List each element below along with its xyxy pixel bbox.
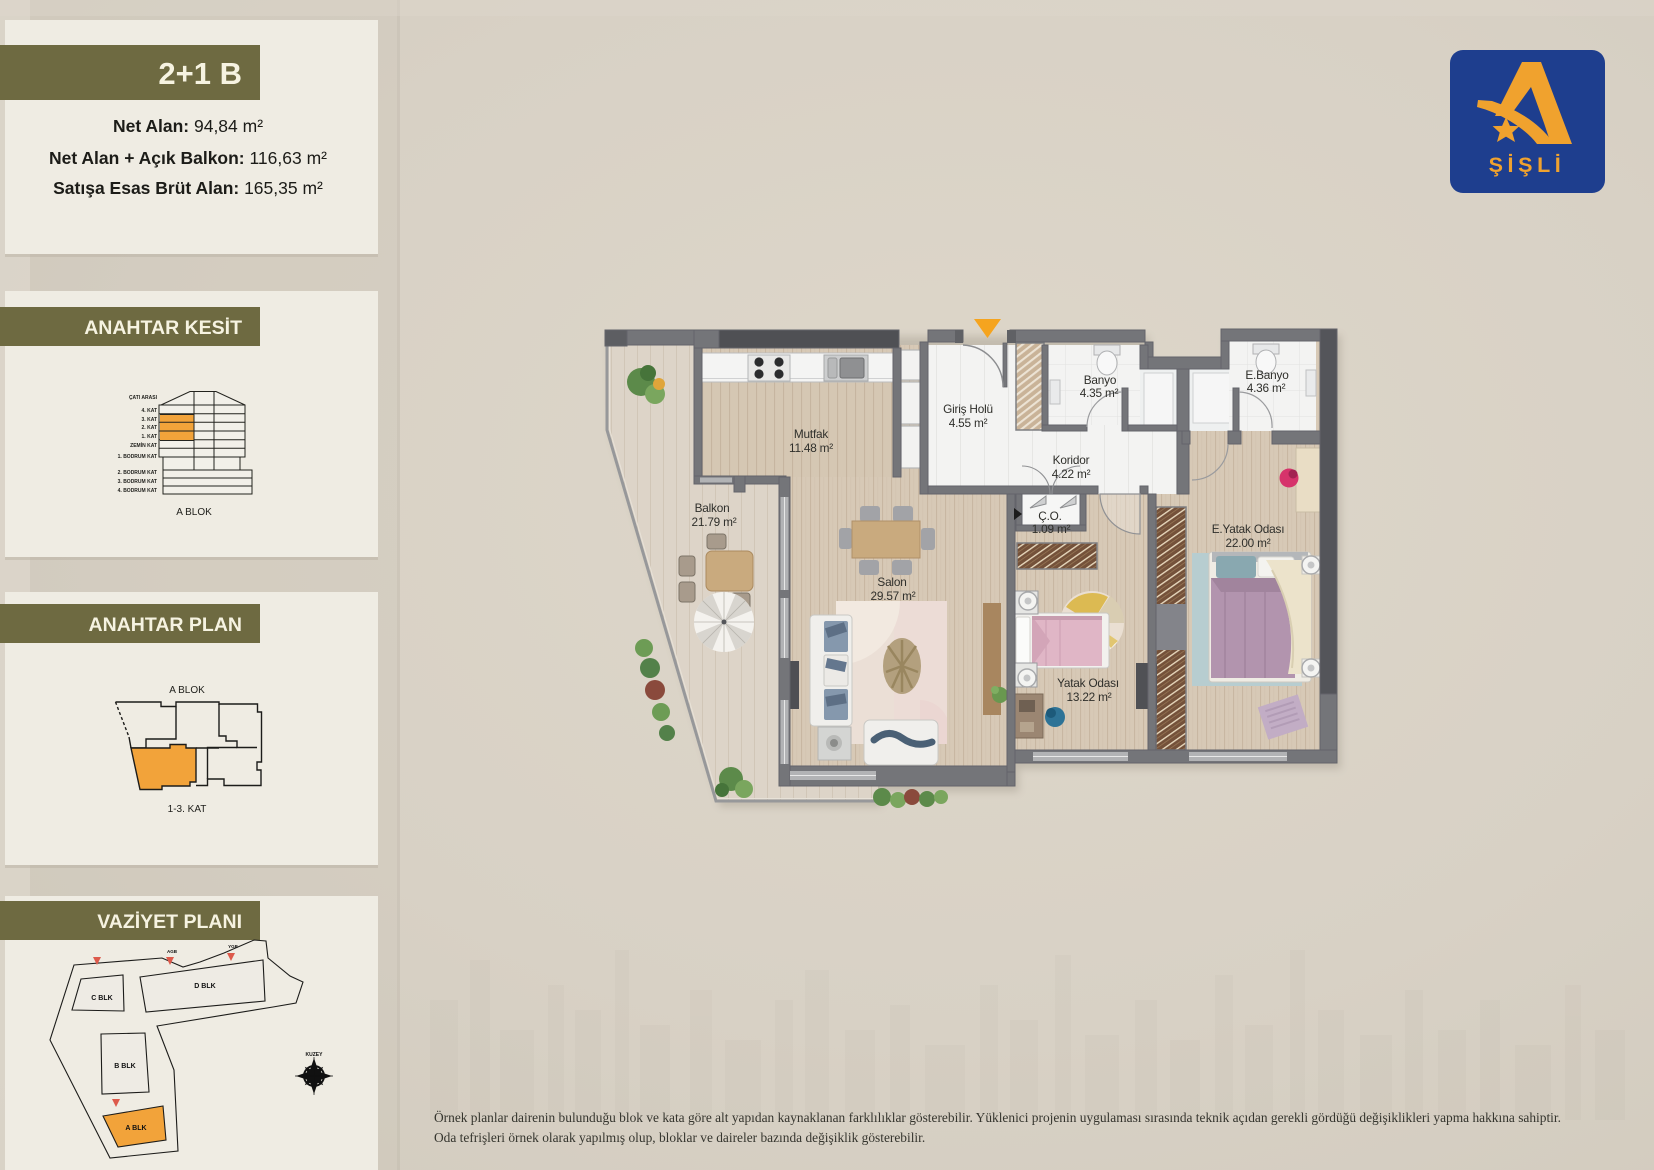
svg-text:Satışa Esas Brüt Alan: 165,35: Satışa Esas Brüt Alan: 165,35 m² [53, 178, 323, 198]
svg-text:Ç.O.: Ç.O. [1038, 509, 1061, 523]
svg-text:4. KAT: 4. KAT [142, 408, 157, 414]
svg-text:Net Alan: 94,84 m²: Net Alan: 94,84 m² [113, 116, 263, 136]
svg-text:Mutfak: Mutfak [794, 427, 829, 441]
svg-text:1. BODRUM KAT: 1. BODRUM KAT [118, 454, 157, 460]
svg-text:1.09 m²: 1.09 m² [1032, 522, 1071, 536]
svg-text:Giriş Holü: Giriş Holü [943, 402, 993, 416]
svg-text:Oda tefrişleri örnek olarak ya: Oda tefrişleri örnek olarak yapılmış olu… [434, 1130, 925, 1145]
svg-text:ZEMİN KAT: ZEMİN KAT [130, 442, 157, 449]
svg-text:1-3. KAT: 1-3. KAT [168, 804, 207, 815]
svg-text:Yatak Odası: Yatak Odası [1057, 676, 1119, 690]
svg-text:A BLK: A BLK [125, 1125, 146, 1132]
svg-text:22.00 m²: 22.00 m² [1226, 536, 1271, 550]
svg-text:2. KAT: 2. KAT [142, 425, 157, 431]
svg-text:2. BODRUM KAT: 2. BODRUM KAT [118, 470, 157, 476]
svg-text:Koridor: Koridor [1053, 453, 1090, 467]
svg-text:A BLOK: A BLOK [169, 685, 205, 696]
svg-text:ÇATI ARASI: ÇATI ARASI [129, 395, 158, 401]
svg-text:A BLOK: A BLOK [176, 507, 212, 518]
svg-text:13.22 m²: 13.22 m² [1067, 690, 1112, 704]
svg-text:Net Alan + Açık Balkon: 116,63: Net Alan + Açık Balkon: 116,63 m² [49, 148, 327, 168]
svg-text:E.Yatak Odası: E.Yatak Odası [1212, 522, 1285, 536]
svg-text:YGB: YGB [228, 944, 239, 949]
svg-text:3. BODRUM KAT: 3. BODRUM KAT [118, 479, 157, 485]
svg-text:2+1 B: 2+1 B [158, 56, 242, 91]
svg-text:4. BODRUM KAT: 4. BODRUM KAT [118, 488, 157, 494]
svg-text:Balkon: Balkon [695, 501, 730, 515]
svg-text:4.36 m²: 4.36 m² [1247, 381, 1286, 395]
svg-text:Örnek planlar dairenin bulundu: Örnek planlar dairenin bulunduğu blok ve… [434, 1110, 1561, 1125]
svg-text:3. KAT: 3. KAT [142, 417, 157, 423]
svg-text:11.48 m²: 11.48 m² [789, 441, 833, 455]
svg-text:ŞİŞLİ: ŞİŞLİ [1489, 153, 1566, 177]
svg-text:ANAHTAR KESİT: ANAHTAR KESİT [84, 316, 242, 339]
svg-text:Salon: Salon [877, 575, 906, 589]
svg-text:B BLK: B BLK [114, 1063, 135, 1070]
svg-text:D BLK: D BLK [194, 983, 215, 990]
svg-text:C BLK: C BLK [91, 995, 112, 1002]
svg-text:1. KAT: 1. KAT [142, 434, 157, 440]
svg-text:21.79 m²: 21.79 m² [692, 515, 737, 529]
svg-text:Banyo: Banyo [1084, 373, 1117, 387]
svg-text:E.Banyo: E.Banyo [1245, 368, 1289, 382]
svg-text:VAZİYET PLANI: VAZİYET PLANI [97, 910, 242, 933]
svg-text:29.57 m²: 29.57 m² [871, 589, 916, 603]
svg-text:ANAHTAR PLAN: ANAHTAR PLAN [89, 614, 242, 636]
svg-text:4.35 m²: 4.35 m² [1080, 386, 1119, 400]
svg-text:AGB: AGB [167, 949, 178, 954]
svg-text:4.22 m²: 4.22 m² [1052, 467, 1091, 481]
svg-text:4.55 m²: 4.55 m² [949, 416, 988, 430]
